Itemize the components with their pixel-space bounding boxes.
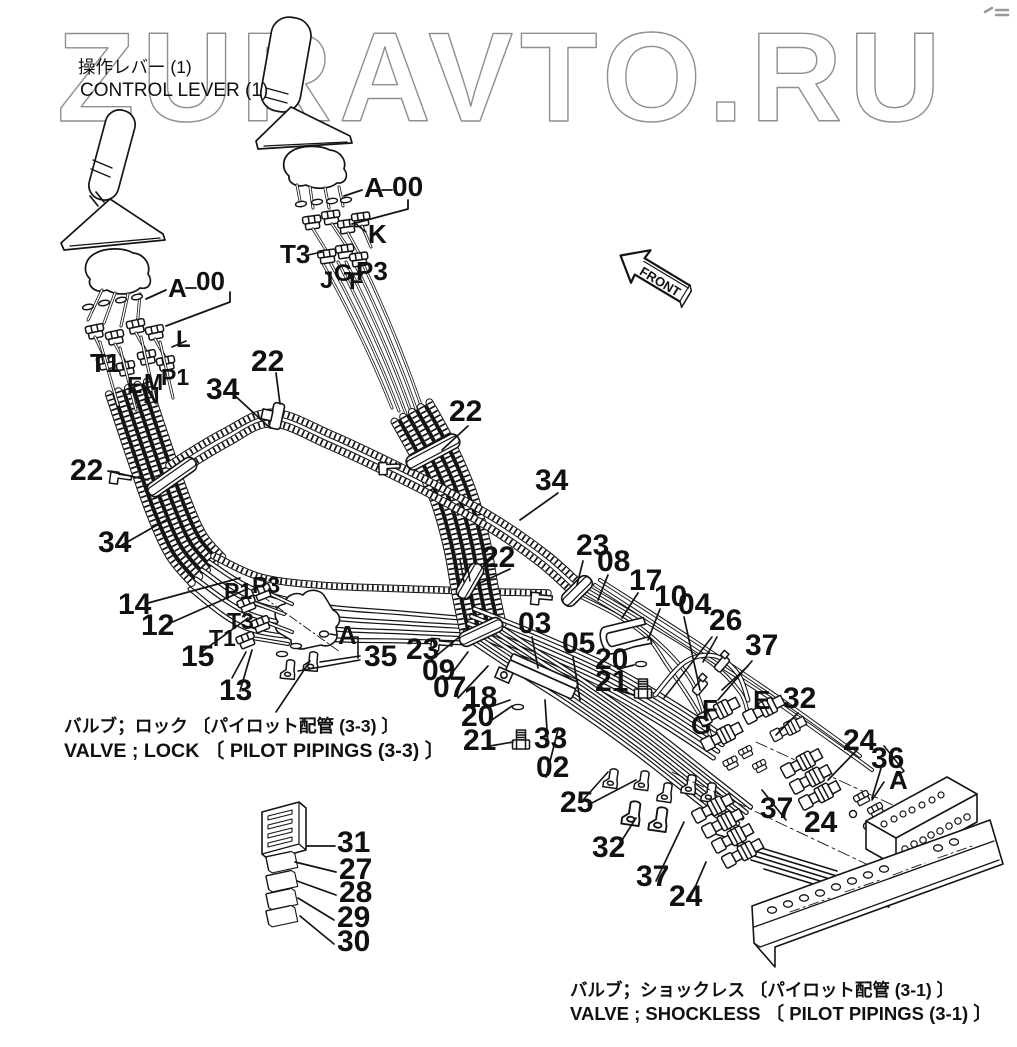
svg-text:24: 24 <box>669 880 703 913</box>
svg-text:00: 00 <box>392 171 423 202</box>
svg-text:T1: T1 <box>90 348 120 378</box>
svg-text:A: A <box>168 273 187 303</box>
svg-text:25: 25 <box>560 786 593 819</box>
svg-text:N: N <box>143 382 160 408</box>
svg-text:P1: P1 <box>161 364 189 390</box>
svg-text:A: A <box>364 172 384 203</box>
svg-text:K: K <box>368 219 387 249</box>
svg-text:A: A <box>889 765 908 795</box>
svg-text:VALVE ; SHOCKLESS 〔 PILOT PI: VALVE ; SHOCKLESS 〔 PILOT PIPINGS (3-1) … <box>570 1003 992 1024</box>
svg-text:26: 26 <box>709 604 742 637</box>
svg-text:02: 02 <box>536 751 569 784</box>
svg-text:P3: P3 <box>252 572 280 598</box>
svg-text:ZURAVTO.RU: ZURAVTO.RU <box>57 6 948 148</box>
svg-text:34: 34 <box>535 464 569 497</box>
svg-text:34: 34 <box>206 373 240 406</box>
svg-text:00: 00 <box>196 266 225 296</box>
svg-text:バルブ；ロック 〔パイロット配管 (3-3) 〕: バルブ；ロック 〔パイロット配管 (3-3) 〕 <box>64 715 399 736</box>
svg-text:21: 21 <box>463 724 496 757</box>
svg-text:22: 22 <box>251 345 284 378</box>
svg-text:T3: T3 <box>280 239 310 269</box>
svg-text:30: 30 <box>337 925 370 958</box>
svg-text:05: 05 <box>562 627 595 660</box>
svg-text:バルブ；ショックレス 〔パイロット配管 (3-1) 〕: バルブ；ショックレス 〔パイロット配管 (3-1) 〕 <box>570 980 954 1000</box>
svg-text:37: 37 <box>745 629 778 662</box>
svg-text:08: 08 <box>597 545 630 578</box>
svg-text:22: 22 <box>449 395 482 428</box>
svg-text:P3: P3 <box>356 256 388 286</box>
svg-text:L: L <box>176 326 191 353</box>
svg-text:32: 32 <box>592 831 625 864</box>
svg-text:E: E <box>753 685 770 715</box>
svg-text:32: 32 <box>783 682 816 715</box>
svg-text:CONTROL LEVER (1): CONTROL LEVER (1) <box>80 80 268 101</box>
svg-text:21: 21 <box>595 665 628 698</box>
svg-text:G: G <box>691 710 711 740</box>
svg-text:A: A <box>338 620 357 650</box>
svg-text:04: 04 <box>678 588 712 621</box>
svg-text:13: 13 <box>219 674 252 707</box>
svg-text:操作レバー (1): 操作レバー (1) <box>78 57 192 77</box>
svg-text:24: 24 <box>804 806 838 839</box>
svg-text:E: E <box>127 372 142 398</box>
svg-text:J: J <box>320 267 333 294</box>
svg-text:22: 22 <box>70 454 103 487</box>
svg-text:03: 03 <box>518 607 551 640</box>
svg-text:35: 35 <box>364 640 397 673</box>
svg-text:VALVE ; LOCK 〔 PILOT PIPINGS: VALVE ; LOCK 〔 PILOT PIPINGS (3-3) 〕 <box>64 739 444 762</box>
svg-text:12: 12 <box>141 609 174 642</box>
